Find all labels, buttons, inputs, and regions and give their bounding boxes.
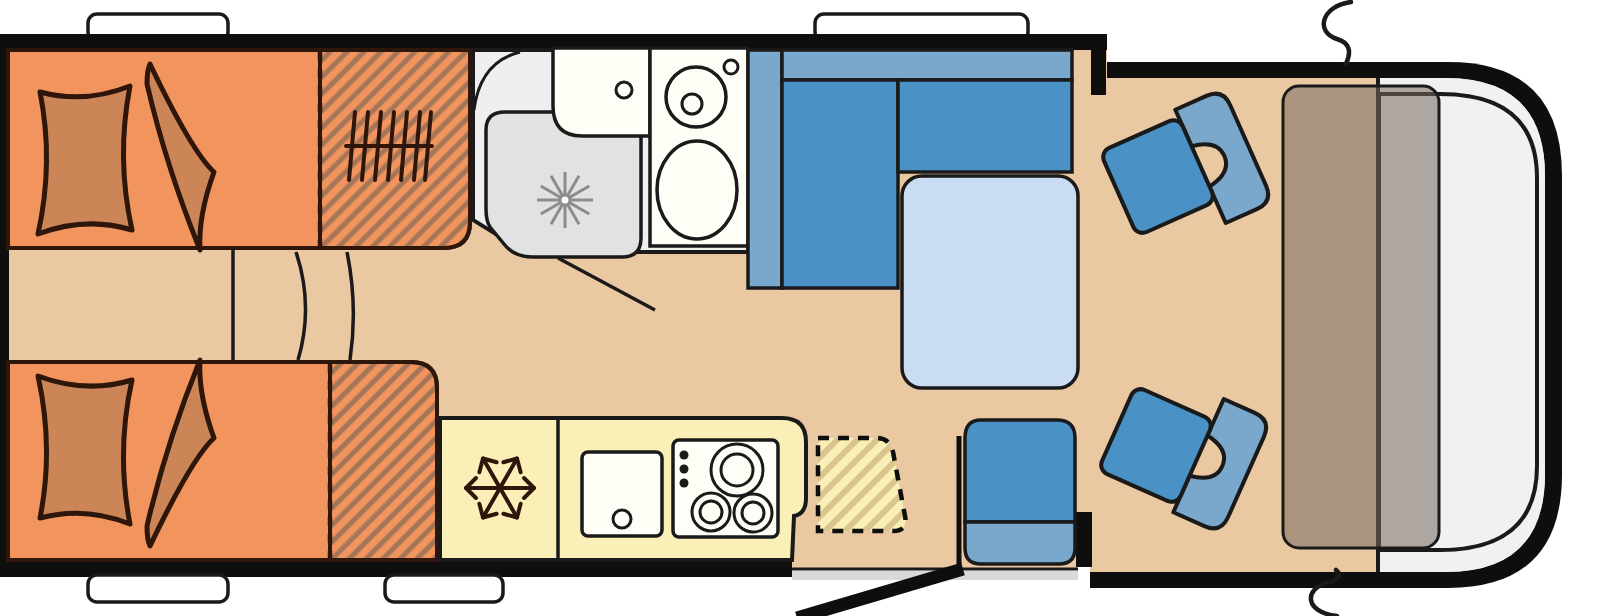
faucet-icon — [616, 82, 632, 98]
bench-seat-left — [782, 80, 898, 288]
toilet-bowl — [657, 141, 737, 239]
drain-icon — [613, 510, 631, 528]
floorplan-canvas — [0, 0, 1599, 616]
hob-knobs — [680, 451, 689, 488]
single-bed-bottom — [8, 360, 437, 560]
washbasin-bowl — [666, 67, 726, 127]
single-bed-top — [8, 50, 470, 250]
faucet-icon — [724, 60, 738, 74]
bench-backrest — [782, 50, 1072, 80]
dinette-table — [902, 176, 1078, 388]
vanity-unit — [553, 48, 650, 136]
window-bottom-kitchen — [385, 575, 503, 602]
worktop-flap-hatch — [818, 438, 906, 531]
floorplan-page — [0, 0, 1599, 616]
pillow-icon — [38, 376, 132, 524]
pillow-icon — [38, 86, 132, 234]
wall-stub-top — [1091, 34, 1106, 95]
bench-seat-top — [898, 80, 1072, 172]
entrance-cabinet — [965, 420, 1075, 522]
window-bottom-rear — [88, 575, 228, 602]
entrance-cabinet-shelf — [965, 522, 1075, 564]
dashboard — [1283, 86, 1439, 548]
bed-hatched-extension — [330, 362, 437, 560]
wall-stub-bottom — [1076, 512, 1092, 567]
sideboard — [748, 50, 782, 288]
bed-hatched-extension — [320, 50, 470, 248]
wing-mirror-icon-top — [1324, 2, 1351, 64]
